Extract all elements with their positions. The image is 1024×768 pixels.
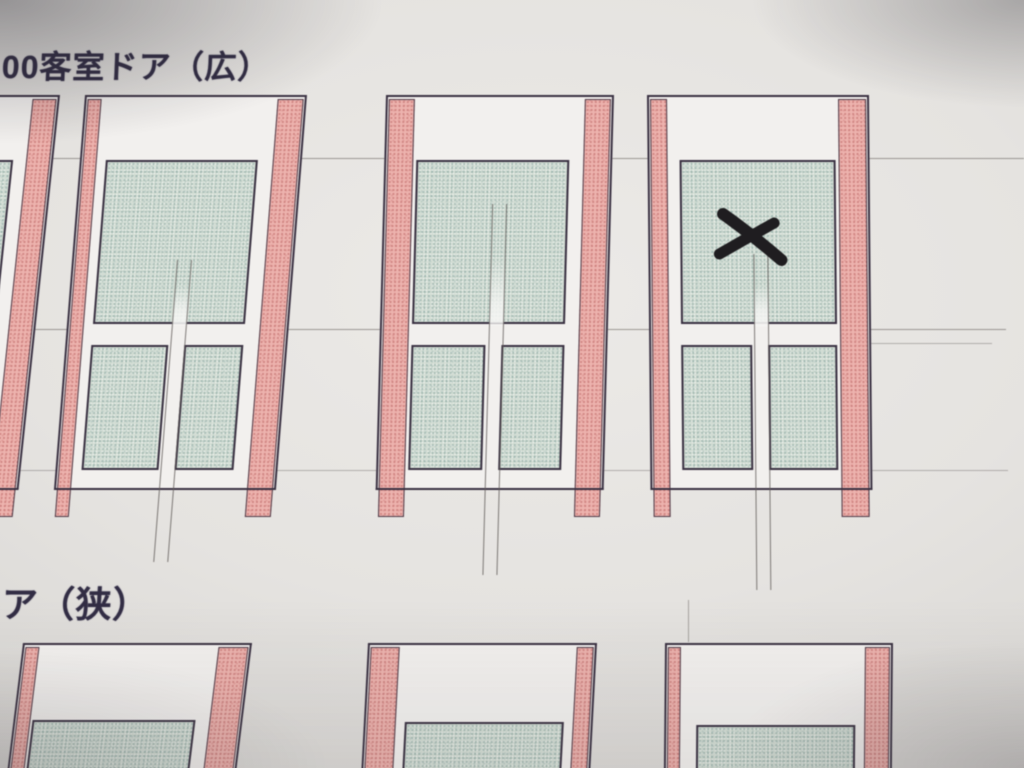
- door-pillar: [574, 99, 611, 517]
- door-bottom-line: [0, 488, 19, 490]
- x-mark: [649, 97, 874, 492]
- door-window: [695, 725, 855, 768]
- drawing-layer: 00客室ドア（広）: [0, 0, 1024, 768]
- stray-pencil-line: [688, 600, 689, 642]
- door-pillar: [364, 647, 400, 768]
- door-pillar: [667, 647, 681, 768]
- section-title-narrow: ドア（狭）: [0, 576, 151, 628]
- wide-door-3: ×: [647, 95, 872, 490]
- door-window: [398, 722, 564, 768]
- lower-window-right: [498, 345, 564, 470]
- narrow-door-3: [664, 643, 893, 768]
- section-title-wide: 00客室ドア（広）: [1, 42, 272, 88]
- door-pillar: [202, 647, 248, 768]
- wide-door-1: [54, 95, 307, 490]
- lower-window-left: [81, 345, 168, 470]
- lower-window-left: [408, 345, 485, 470]
- door-pillar: [864, 647, 890, 768]
- door-pillar: [570, 647, 594, 768]
- narrow-door-1: [7, 643, 252, 768]
- guide-line-rail-bottom: [860, 343, 992, 344]
- door-window: [17, 720, 196, 768]
- lower-window-right: [174, 345, 243, 470]
- wide-door-2: [376, 95, 614, 490]
- photo-of-door-drawing-sheet: 00客室ドア（広）: [0, 0, 1024, 768]
- wide-door-partial: [0, 95, 60, 490]
- narrow-door-2: [361, 643, 597, 768]
